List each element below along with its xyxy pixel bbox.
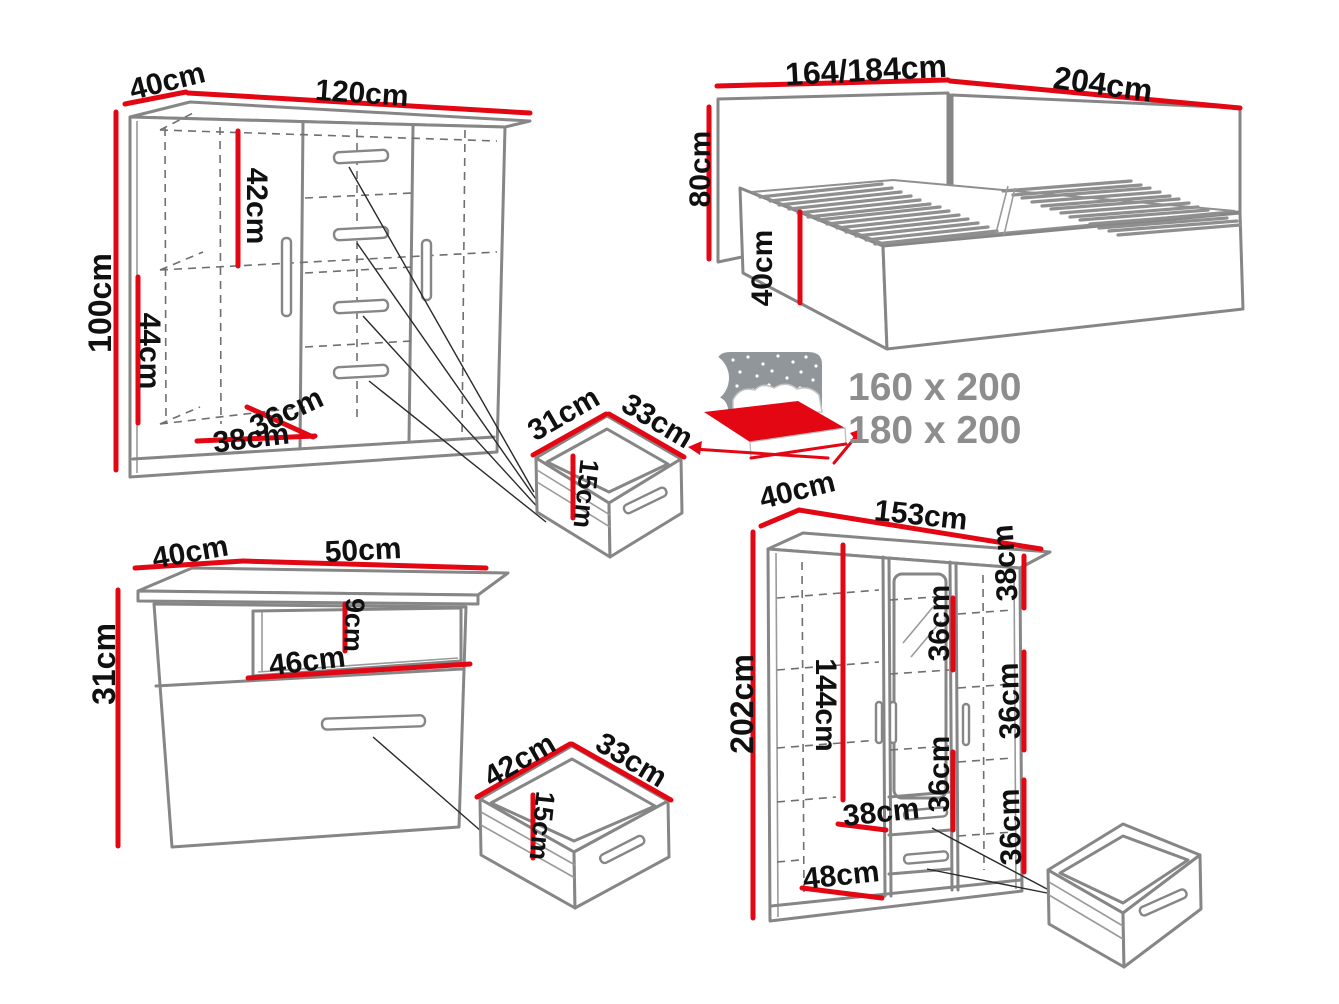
- mattress-size-1: 160 x 200: [848, 366, 1022, 409]
- corner-drawer: [1048, 824, 1201, 967]
- wardrobe-middle-shelf-label-1: 36cm: [923, 585, 956, 662]
- bed-headboard-height-label: 80cm: [684, 131, 717, 208]
- chest-left-door-handle: [282, 238, 291, 316]
- chest-width-label: 120cm: [314, 74, 409, 113]
- nightstand-top-edge: [138, 591, 478, 604]
- mattress-size-icon: 160 x 200 180 x 200: [677, 352, 1022, 463]
- chest-of-drawers: 40cm 120cm 100cm 42cm 44cm 36cm 38cm: [82, 56, 530, 477]
- wardrobe-top-right-shelf-label: 38cm: [986, 523, 1024, 602]
- chest-drawer-handle-3: [334, 300, 389, 314]
- wardrobe-width-label: 153cm: [873, 494, 969, 537]
- wardrobe-middle-shelf-label-2: 36cm: [923, 736, 956, 813]
- width-arrow-head: [688, 441, 702, 455]
- chest-drawer-handle-2: [334, 227, 389, 241]
- chest-height-label: 100cm: [82, 253, 118, 353]
- furniture-dimensions-diagram: 40cm 120cm 100cm 42cm 44cm 36cm 38cm 31c…: [0, 0, 1339, 1004]
- wardrobe-right-shelf-label-2: 36cm: [993, 788, 1029, 866]
- bed-width-label: 164/184cm: [784, 48, 948, 92]
- wardrobe-handle-2: [890, 702, 896, 743]
- wardrobe: 40cm 153cm 202cm 144cm 38cm 48cm 36cm 36…: [724, 465, 1050, 921]
- nightstand-height-label: 31cm: [86, 623, 122, 705]
- moon-crescent-cut: [677, 352, 729, 404]
- wardrobe-handle-3: [963, 704, 969, 745]
- medium-drawer: 42cm 33cm 15cm: [477, 726, 673, 908]
- chest-inner-top-label: 42cm: [240, 168, 273, 245]
- chest-front-face: [130, 117, 505, 477]
- bed: 164/184cm 204cm 80cm 40cm: [684, 48, 1243, 349]
- wardrobe-right-shelf-label-1: 36cm: [992, 662, 1028, 740]
- chest-right-door-handle: [422, 240, 431, 300]
- wardrobe-hanging-label: 144cm: [809, 658, 842, 751]
- wardrobe-handle-1: [876, 702, 882, 743]
- mattress-size-2: 180 x 200: [848, 409, 1022, 452]
- chest-inner-bottom-label: 44cm: [133, 313, 166, 390]
- chest-depth-label: 40cm: [126, 56, 208, 107]
- wardrobe-height-label: 202cm: [724, 654, 760, 754]
- nightstand-width-label: 50cm: [324, 532, 402, 569]
- chest-drawer-handle-4: [334, 365, 389, 379]
- chest-drawer-handle-1: [334, 150, 389, 164]
- bed-base-height-label: 40cm: [746, 230, 779, 307]
- small-drawer: 31cm 33cm 15cm: [522, 381, 698, 557]
- nightstand-drawer-handle: [322, 715, 425, 730]
